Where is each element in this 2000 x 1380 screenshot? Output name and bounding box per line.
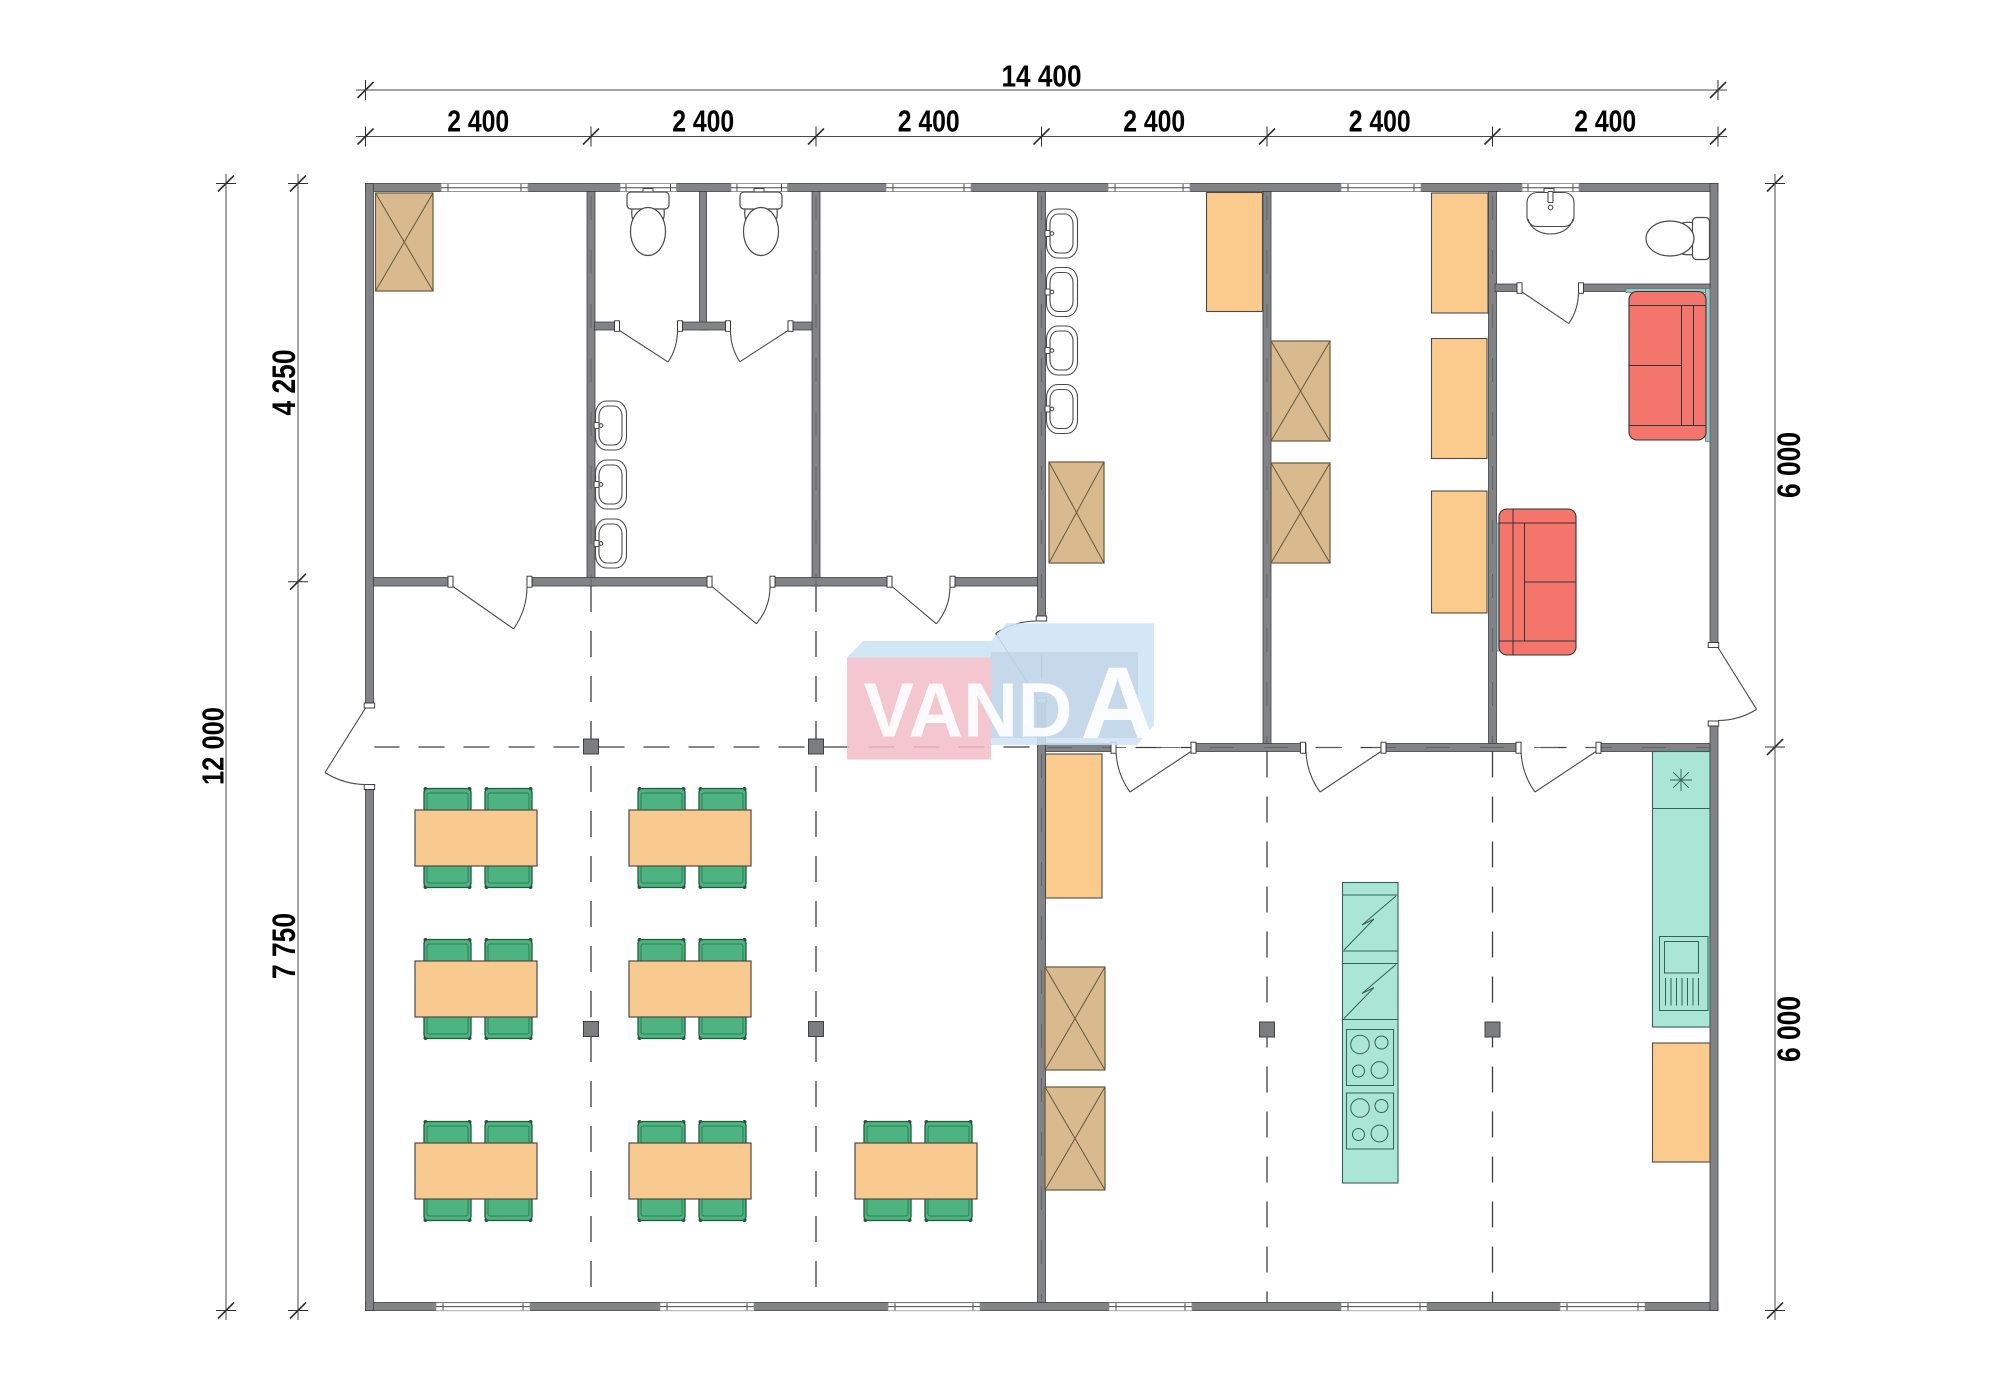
svg-text:A: A [1080,646,1155,760]
svg-text:4 250: 4 250 [266,350,302,416]
svg-text:6 000: 6 000 [1771,996,1807,1062]
svg-text:2 400: 2 400 [672,104,734,139]
svg-text:6 000: 6 000 [1771,432,1807,498]
svg-text:2 400: 2 400 [1349,104,1411,139]
svg-text:2 400: 2 400 [898,104,960,139]
svg-text:2 400: 2 400 [447,104,509,139]
svg-text:12 000: 12 000 [196,707,231,785]
svg-text:14 400: 14 400 [1002,59,1082,94]
svg-text:2 400: 2 400 [1123,104,1185,139]
svg-text:7 750: 7 750 [266,913,302,979]
svg-text:VAND: VAND [864,668,1073,754]
svg-text:2 400: 2 400 [1574,104,1636,139]
